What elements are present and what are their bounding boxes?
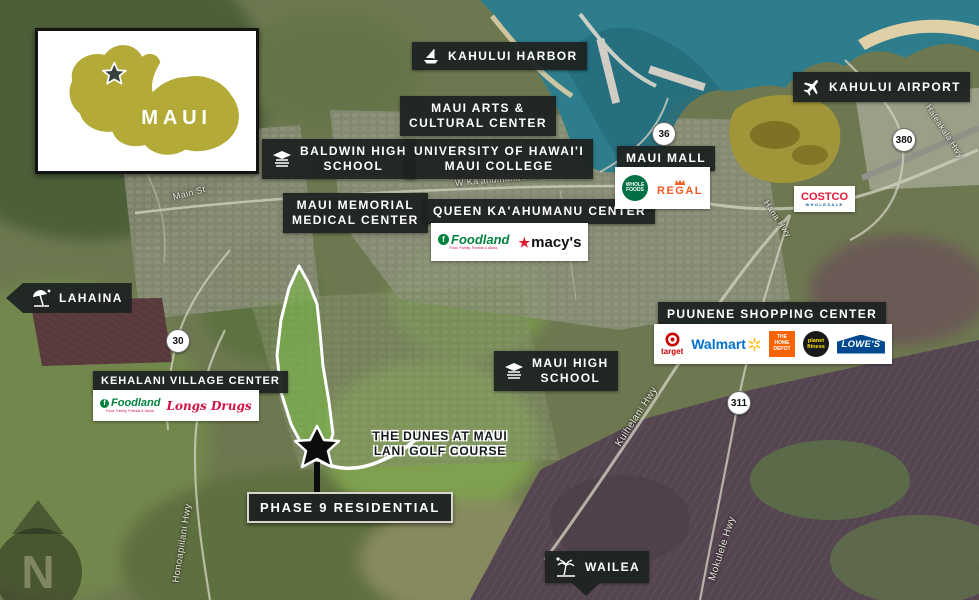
sailboat-icon: [421, 47, 441, 65]
route-shield-380: 380: [892, 128, 916, 152]
compass-circle: N: [0, 528, 82, 600]
lowes-logo: LOWE'S: [837, 335, 885, 354]
poi-label: MAUI MALL: [626, 151, 706, 166]
poi-lahaina-direction: LAHAINA: [6, 283, 132, 313]
poi-label-line2: CULTURAL CENTER: [409, 116, 547, 131]
poi-maui-high-school: MAUI HIGH SCHOOL: [494, 351, 618, 391]
costco-logo: COSTCO WHOLESALE: [801, 192, 848, 207]
maui-island-shape: MAUI: [38, 31, 250, 165]
beach-umbrella-icon: [30, 288, 52, 308]
poi-label-line1: MAUI HIGH: [532, 356, 609, 371]
route-shield-36: 36: [652, 122, 676, 146]
macys-star-icon: ★: [519, 236, 531, 249]
inset-island-label: MAUI: [141, 107, 211, 129]
phase9-residential-label: PHASE 9 RESIDENTIAL: [247, 492, 453, 523]
street-label-kuihelani-hwy: Kuihelani Hwy: [613, 385, 660, 449]
street-label-mokulele-hwy: Mokulele Hwy: [707, 515, 738, 582]
street-label-main-st: Main St: [172, 184, 207, 202]
poi-label-line1: MAUI MEMORIAL: [297, 198, 415, 213]
target-logo: target: [661, 332, 683, 356]
queen-kaahumanu-logo-panel: f Foodland Food. Family. Friends & Aloha…: [431, 223, 588, 261]
walmart-spark-icon: [748, 338, 761, 351]
poi-label-line2: SCHOOL: [324, 159, 384, 174]
pond: [729, 95, 840, 183]
puunene-logo-panel: target Walmart THE HOME DEPOT planet fit…: [654, 324, 892, 364]
wailea-direction-arrow: [572, 583, 600, 596]
poi-maui-memorial-medical-center: MAUI MEMORIAL MEDICAL CENTER: [283, 193, 428, 233]
poi-label-line2: SCHOOL: [540, 371, 600, 386]
pin-stem: [314, 462, 320, 494]
route-shield-30: 30: [166, 329, 190, 353]
breakwater: [580, 14, 656, 86]
graduation-cap-icon: [271, 149, 293, 169]
maui-mall-logo-panel: WHOLE FOODS REGAL: [615, 167, 710, 209]
poi-label-line2: MAUI COLLEGE: [445, 159, 554, 174]
poi-label: KAHULUI AIRPORT: [829, 80, 961, 95]
poi-maui-arts-cultural-center: MAUI ARTS & CULTURAL CENTER: [400, 96, 556, 136]
poi-baldwin-high-school: BALDWIN HIGH SCHOOL: [262, 139, 416, 179]
poi-label: KEHALANI VILLAGE CENTER: [101, 375, 280, 389]
foodland-leaf-icon: f: [100, 399, 109, 408]
macys-logo: ★ macy's: [519, 234, 582, 251]
poi-label: PUUNENE SHOPPING CENTER: [667, 307, 877, 322]
poi-label: WAILEA: [585, 560, 640, 575]
route-shield-311: 311: [727, 391, 751, 415]
airport-area: [855, 88, 979, 190]
street-label-honoapiilani-hwy: Honoapiilani Hwy: [171, 503, 194, 584]
poi-kahului-harbor: KAHULUI HARBOR: [412, 42, 587, 70]
north-compass: N: [0, 500, 96, 600]
target-bullseye-icon: [665, 332, 680, 347]
compass-north-label: N: [21, 545, 54, 599]
whole-foods-logo: WHOLE FOODS: [622, 175, 648, 201]
dunes-golf-course-label: THE DUNES AT MAUI LANI GOLF COURSE: [372, 429, 508, 459]
poi-label-line2: MEDICAL CENTER: [292, 213, 419, 228]
foodland-logo: f Foodland Food. Family. Friends & Aloha…: [100, 398, 161, 414]
beach-sand: [858, 20, 979, 50]
map-canvas: W Ka'ahumanu Ave Main St Hana Hwy Haleak…: [0, 0, 979, 600]
walmart-logo: Walmart: [691, 336, 761, 352]
foodland-logo: f Foodland Food. Family. Friends & Aloha…: [438, 233, 510, 251]
street-label-haleakala-hwy: Haleakala Hwy: [924, 102, 966, 159]
costco-logo-panel: COSTCO WHOLESALE: [794, 186, 855, 212]
longs-drugs-logo: Longs Drugs: [167, 399, 252, 413]
poi-kahului-airport: KAHULUI AIRPORT: [793, 72, 970, 102]
poi-wailea-direction: WAILEA: [545, 551, 649, 583]
poi-label: KAHULUI HARBOR: [448, 49, 578, 64]
kehalani-logo-panel: f Foodland Food. Family. Friends & Aloha…: [93, 390, 259, 421]
foodland-leaf-icon: f: [438, 234, 449, 245]
airplane-icon: [802, 77, 822, 97]
regal-logo: REGAL: [657, 179, 703, 197]
poi-label-line1: BALDWIN HIGH: [300, 144, 407, 159]
poi-label-line1: UNIVERSITY OF HAWAI'I: [414, 144, 584, 159]
poi-university-maui-college: UNIVERSITY OF HAWAI'I MAUI COLLEGE: [405, 139, 593, 179]
street-label-hana-hwy: Hana Hwy: [762, 198, 794, 239]
graduation-cap-icon: [503, 361, 525, 381]
phase9-site-boundary: [277, 266, 333, 456]
poi-label-line1: MAUI ARTS &: [431, 101, 525, 116]
inset-locator-map: MAUI: [35, 28, 259, 174]
phase9-star-pin: [295, 426, 339, 467]
harbor-piers: [596, 38, 705, 104]
home-depot-logo: THE HOME DEPOT: [769, 331, 795, 357]
palm-tree-icon: [554, 556, 578, 578]
planet-fitness-logo: planet fitness: [803, 331, 829, 357]
poi-label: LAHAINA: [59, 291, 123, 306]
